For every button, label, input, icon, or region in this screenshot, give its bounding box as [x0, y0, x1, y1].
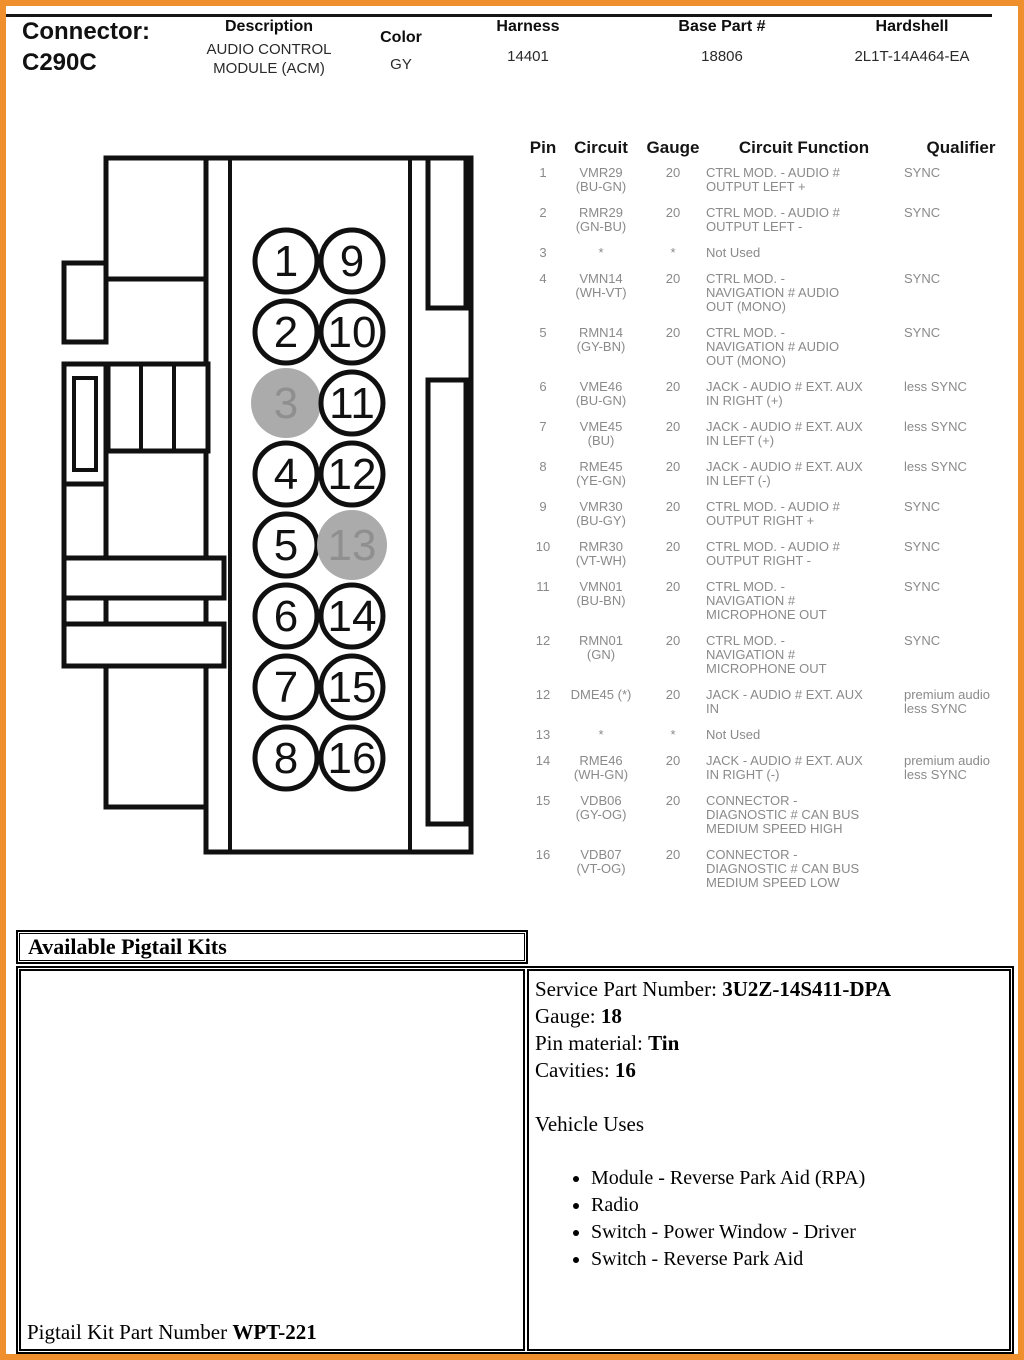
pin-table-row: 11VMN01 (BU-BN)20CTRL MOD. - NAVIGATION … — [524, 580, 1020, 622]
vehicle-use-item: Switch - Power Window - Driver — [591, 1222, 1001, 1242]
pin-table-row: 15VDB06 (GY-OG)20CONNECTOR - DIAGNOSTIC … — [524, 794, 1020, 836]
circuit-function-cell: CTRL MOD. - AUDIO # OUTPUT RIGHT - — [706, 540, 902, 568]
base-part-label: Base Part # — [652, 18, 792, 36]
service-part-number-label: Service Part Number: — [535, 977, 722, 1001]
header-field-color: Color GY — [361, 29, 441, 74]
pin-table-row: 5RMN14 (GY-BN)20CTRL MOD. - NAVIGATION #… — [524, 326, 1020, 368]
qualifier-cell: SYNC — [902, 580, 1020, 622]
pin-table: Pin Circuit Gauge Circuit Function Quali… — [524, 138, 1020, 902]
circuit-function-cell: CTRL MOD. - AUDIO # OUTPUT RIGHT + — [706, 500, 902, 528]
connector-pinout-diagram: 12345678910111213141516 — [46, 146, 486, 866]
gauge-cell: 20 — [640, 460, 706, 488]
pin-number-2: 2 — [274, 308, 298, 357]
circuit-function-cell: JACK - AUDIO # EXT. AUX IN LEFT (-) — [706, 460, 902, 488]
pin-table-row: 9VMR30 (BU-GY)20CTRL MOD. - AUDIO # OUTP… — [524, 500, 1020, 528]
qualifier-cell — [902, 794, 1020, 836]
pin-cell: 1 — [524, 166, 562, 194]
kit-part-number-value: WPT-221 — [232, 1320, 316, 1344]
gauge-cell: 20 — [640, 794, 706, 836]
pigtail-kits-header-box: Available Pigtail Kits — [16, 930, 528, 964]
pin-cell: 10 — [524, 540, 562, 568]
gauge-label: Gauge: — [535, 1004, 601, 1028]
pin-number-15: 15 — [328, 663, 377, 712]
gauge-cell: * — [640, 728, 706, 742]
pin-number-7: 7 — [274, 663, 298, 712]
pin-cell: 3 — [524, 246, 562, 260]
pin-cell: 15 — [524, 794, 562, 836]
harness-value: 14401 — [458, 47, 598, 66]
service-part-cell: Service Part Number: 3U2Z-14S411-DPA Gau… — [527, 969, 1011, 1351]
gauge-cell: 20 — [640, 580, 706, 622]
pin-table-row: 10RMR30 (VT-WH)20CTRL MOD. - AUDIO # OUT… — [524, 540, 1020, 568]
pin-number-14: 14 — [328, 592, 377, 641]
base-part-value: 18806 — [652, 47, 792, 66]
color-label: Color — [361, 29, 441, 47]
gauge-cell: 20 — [640, 206, 706, 234]
pin-cell: 14 — [524, 754, 562, 782]
gauge-cell: 20 — [640, 848, 706, 890]
pin-material-line: Pin material: Tin — [535, 1030, 1001, 1057]
gauge-value: 18 — [601, 1004, 622, 1028]
top-divider-rule — [6, 14, 992, 17]
circuit-cell: VMN14 (WH-VT) — [562, 272, 640, 314]
circuit-cell: RMR30 (VT-WH) — [562, 540, 640, 568]
qualifier-cell: less SYNC — [902, 380, 1020, 408]
col-header-gauge: Gauge — [640, 138, 706, 158]
pin-table-row: 6VME46 (BU-GN)20JACK - AUDIO # EXT. AUX … — [524, 380, 1020, 408]
qualifier-cell: SYNC — [902, 500, 1020, 528]
col-header-qualifier: Qualifier — [902, 138, 1020, 158]
qualifier-cell: SYNC — [902, 540, 1020, 568]
gauge-cell: 20 — [640, 540, 706, 568]
header-field-description: Description AUDIO CONTROL MODULE (ACM) — [174, 18, 364, 78]
circuit-cell: VDB06 (GY-OG) — [562, 794, 640, 836]
circuit-cell: RMN14 (GY-BN) — [562, 326, 640, 368]
pin-number-9: 9 — [340, 237, 364, 286]
pin-cell: 16 — [524, 848, 562, 890]
pin-table-row: 7VME45 (BU)20JACK - AUDIO # EXT. AUX IN … — [524, 420, 1020, 448]
pin-number-12: 12 — [328, 450, 377, 499]
vehicle-uses-title: Vehicle Uses — [535, 1111, 1001, 1138]
gauge-cell: 20 — [640, 326, 706, 368]
qualifier-cell: SYNC — [902, 206, 1020, 234]
circuit-cell: VMR29 (BU-GN) — [562, 166, 640, 194]
circuit-function-cell: CTRL MOD. - NAVIGATION # MICROPHONE OUT — [706, 580, 902, 622]
header-field-hardshell: Hardshell 2L1T-14A464-EA — [812, 18, 1012, 66]
hardshell-value: 2L1T-14A464-EA — [812, 47, 1012, 66]
pin-table-row: 16VDB07 (VT-OG)20CONNECTOR - DIAGNOSTIC … — [524, 848, 1020, 890]
pin-number-11: 11 — [329, 379, 375, 428]
gauge-cell: 20 — [640, 688, 706, 716]
harness-label: Harness — [458, 18, 598, 36]
circuit-function-cell: JACK - AUDIO # EXT. AUX IN LEFT (+) — [706, 420, 902, 448]
qualifier-cell — [902, 246, 1020, 260]
circuit-function-cell: JACK - AUDIO # EXT. AUX IN — [706, 688, 902, 716]
pin-table-row: 3**Not Used — [524, 246, 1020, 260]
gauge-cell: 20 — [640, 380, 706, 408]
pigtail-kits-body: Pigtail Kit Part Number WPT-221 Service … — [16, 966, 1014, 1354]
qualifier-cell: SYNC — [902, 634, 1020, 676]
circuit-function-cell: Not Used — [706, 728, 902, 742]
circuit-cell: DME45 (*) — [562, 688, 640, 716]
col-header-pin: Pin — [524, 138, 562, 158]
circuit-function-cell: CONNECTOR - DIAGNOSTIC # CAN BUS MEDIUM … — [706, 794, 902, 836]
header-field-base-part: Base Part # 18806 — [652, 18, 792, 66]
pin-cell: 12 — [524, 688, 562, 716]
circuit-function-cell: CTRL MOD. - AUDIO # OUTPUT LEFT + — [706, 166, 902, 194]
vehicle-uses-list: Module - Reverse Park Aid (RPA) Radio Sw… — [535, 1168, 1001, 1269]
gauge-line: Gauge: 18 — [535, 1003, 1001, 1030]
vehicle-use-item: Switch - Reverse Park Aid — [591, 1249, 1001, 1269]
kit-part-number-label: Pigtail Kit Part Number — [27, 1320, 232, 1344]
cavities-value: 16 — [615, 1058, 636, 1082]
circuit-function-cell: CTRL MOD. - NAVIGATION # MICROPHONE OUT — [706, 634, 902, 676]
pin-number-1: 1 — [274, 237, 298, 286]
qualifier-cell: less SYNC — [902, 420, 1020, 448]
gauge-cell: 20 — [640, 500, 706, 528]
pin-cell: 8 — [524, 460, 562, 488]
vehicle-use-item: Radio — [591, 1195, 1001, 1215]
circuit-function-cell: JACK - AUDIO # EXT. AUX IN RIGHT (-) — [706, 754, 902, 782]
vehicle-use-item: Module - Reverse Park Aid (RPA) — [591, 1168, 1001, 1188]
circuit-cell: * — [562, 728, 640, 742]
col-header-circuit: Circuit — [562, 138, 640, 158]
qualifier-cell: premium audio less SYNC — [902, 688, 1020, 716]
service-part-number-line: Service Part Number: 3U2Z-14S411-DPA — [535, 976, 1001, 1003]
gauge-cell: * — [640, 246, 706, 260]
color-value: GY — [361, 55, 441, 74]
qualifier-cell: SYNC — [902, 326, 1020, 368]
pin-number-16: 16 — [328, 734, 377, 783]
description-label: Description — [174, 18, 364, 36]
pin-number-5: 5 — [274, 521, 298, 570]
pin-cell: 5 — [524, 326, 562, 368]
pin-table-row: 14RME46 (WH-GN)20JACK - AUDIO # EXT. AUX… — [524, 754, 1020, 782]
pin-material-value: Tin — [648, 1031, 679, 1055]
pin-table-header: Pin Circuit Gauge Circuit Function Quali… — [524, 138, 1020, 158]
pin-cell: 6 — [524, 380, 562, 408]
circuit-function-cell: CTRL MOD. - NAVIGATION # AUDIO OUT (MONO… — [706, 272, 902, 314]
qualifier-cell — [902, 728, 1020, 742]
pin-number-6: 6 — [274, 592, 298, 641]
qualifier-cell: SYNC — [902, 166, 1020, 194]
gauge-cell: 20 — [640, 166, 706, 194]
circuit-function-cell: CONNECTOR - DIAGNOSTIC # CAN BUS MEDIUM … — [706, 848, 902, 890]
pigtail-kit-part-number: Pigtail Kit Part Number WPT-221 — [27, 1320, 317, 1345]
pin-table-rows: 1VMR29 (BU-GN)20CTRL MOD. - AUDIO # OUTP… — [524, 166, 1020, 890]
pin-table-row: 12RMN01 (GN)20CTRL MOD. - NAVIGATION # M… — [524, 634, 1020, 676]
pin-cell: 4 — [524, 272, 562, 314]
pin-cell: 7 — [524, 420, 562, 448]
qualifier-cell: SYNC — [902, 272, 1020, 314]
qualifier-cell: premium audio less SYNC — [902, 754, 1020, 782]
circuit-cell: VMN01 (BU-BN) — [562, 580, 640, 622]
circuit-cell: VME46 (BU-GN) — [562, 380, 640, 408]
circuit-function-cell: JACK - AUDIO # EXT. AUX IN RIGHT (+) — [706, 380, 902, 408]
circuit-function-cell: CTRL MOD. - NAVIGATION # AUDIO OUT (MONO… — [706, 326, 902, 368]
gauge-cell: 20 — [640, 754, 706, 782]
pin-number-4: 4 — [274, 450, 298, 499]
pin-table-row: 1VMR29 (BU-GN)20CTRL MOD. - AUDIO # OUTP… — [524, 166, 1020, 194]
hardshell-label: Hardshell — [812, 18, 1012, 36]
circuit-function-cell: CTRL MOD. - AUDIO # OUTPUT LEFT - — [706, 206, 902, 234]
pin-cell: 13 — [524, 728, 562, 742]
circuit-cell: * — [562, 246, 640, 260]
pin-table-row: 13**Not Used — [524, 728, 1020, 742]
circuit-cell: VDB07 (VT-OG) — [562, 848, 640, 890]
circuit-function-cell: Not Used — [706, 246, 902, 260]
pin-table-row: 2RMR29 (GN-BU)20CTRL MOD. - AUDIO # OUTP… — [524, 206, 1020, 234]
pin-number-3: 3 — [274, 379, 298, 428]
circuit-cell: VMR30 (BU-GY) — [562, 500, 640, 528]
col-header-circuit-function: Circuit Function — [706, 138, 902, 158]
connector-spec-page: Connector: C290C Description AUDIO CONTR… — [0, 0, 1024, 1360]
pin-material-label: Pin material: — [535, 1031, 648, 1055]
pin-table-row: 12DME45 (*)20JACK - AUDIO # EXT. AUX INp… — [524, 688, 1020, 716]
gauge-cell: 20 — [640, 272, 706, 314]
cavities-label: Cavities: — [535, 1058, 615, 1082]
pin-table-row: 8RME45 (YE-GN)20JACK - AUDIO # EXT. AUX … — [524, 460, 1020, 488]
circuit-cell: VME45 (BU) — [562, 420, 640, 448]
qualifier-cell — [902, 848, 1020, 890]
pin-cell: 12 — [524, 634, 562, 676]
header-field-harness: Harness 14401 — [458, 18, 598, 66]
pin-cell: 11 — [524, 580, 562, 622]
pin-cell: 9 — [524, 500, 562, 528]
connector-id: Connector: C290C — [22, 16, 150, 78]
circuit-cell: RME46 (WH-GN) — [562, 754, 640, 782]
pin-number-8: 8 — [274, 734, 298, 783]
gauge-cell: 20 — [640, 420, 706, 448]
pin-number-10: 10 — [328, 308, 377, 357]
circuit-cell: RMR29 (GN-BU) — [562, 206, 640, 234]
circuit-cell: RME45 (YE-GN) — [562, 460, 640, 488]
pin-table-row: 4VMN14 (WH-VT)20CTRL MOD. - NAVIGATION #… — [524, 272, 1020, 314]
pigtail-kit-cell: Pigtail Kit Part Number WPT-221 — [19, 969, 525, 1351]
pin-number-13: 13 — [328, 521, 377, 570]
circuit-cell: RMN01 (GN) — [562, 634, 640, 676]
gauge-cell: 20 — [640, 634, 706, 676]
cavities-line: Cavities: 16 — [535, 1057, 1001, 1084]
pin-cell: 2 — [524, 206, 562, 234]
description-value: AUDIO CONTROL MODULE (ACM) — [174, 40, 364, 78]
qualifier-cell: less SYNC — [902, 460, 1020, 488]
service-part-number-value: 3U2Z-14S411-DPA — [722, 977, 891, 1001]
pigtail-kits-title: Available Pigtail Kits — [19, 933, 525, 961]
